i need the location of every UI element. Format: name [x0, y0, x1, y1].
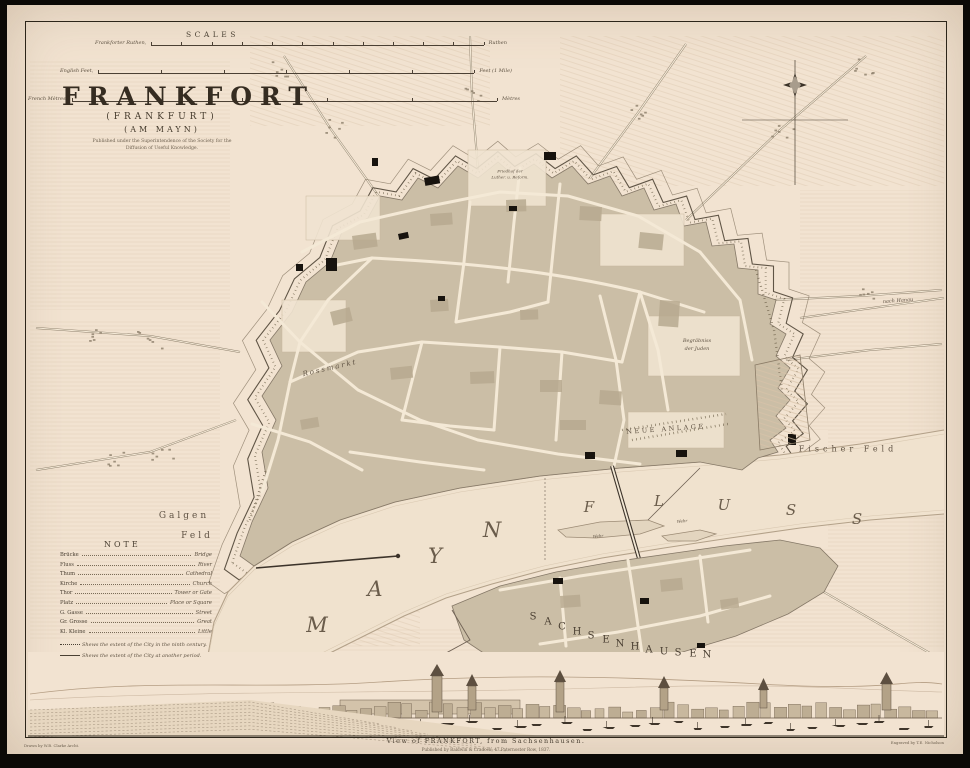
note-entry: BrückeBridge: [60, 552, 212, 562]
spread-letter-sachsenhausen: N: [616, 639, 625, 650]
note-meaning: Great: [197, 619, 212, 625]
credit-engraved-by: Engraved by T.E. Nicholson: [780, 740, 944, 745]
note-leader: [77, 565, 195, 566]
spread-letter-mayn: N: [483, 518, 501, 542]
spread-letter-sachsenhausen: S: [675, 648, 682, 659]
note-entry: Kl. KleineLittle: [60, 629, 212, 639]
spread-letter-sachsenhausen: H: [631, 642, 640, 653]
note-entry: G. GasseStreet: [60, 610, 212, 620]
publisher-imprint-line1: Published under the Superintendence of t…: [30, 139, 294, 144]
map-subtitle-am-mayn: (AM MAYN): [62, 125, 262, 134]
note-meaning: Place or Square: [170, 600, 212, 606]
spread-letter-sachsenhausen: H: [573, 627, 582, 638]
note-meaning: River: [198, 562, 212, 568]
note-term: Thum: [60, 571, 75, 577]
note-leader: [76, 603, 167, 604]
note-entry: PlatzPlace or Square: [60, 600, 212, 610]
spread-letter-sachsenhausen: E: [602, 635, 609, 646]
label-begraebniss-der-juden-2: der Juden: [685, 346, 710, 352]
scale-ruler: [151, 40, 483, 46]
spread-letter-sachsenhausen: E: [689, 649, 696, 660]
dashed-line-symbol: [60, 655, 80, 656]
note-term: Fluss: [60, 562, 74, 568]
note-entry: FlussRiver: [60, 562, 212, 572]
panorama-imprint: Published by Baldwin & Cradock, 47 Pater…: [266, 747, 706, 752]
spread-letter-fluss: L: [654, 492, 664, 510]
map-subtitle-frankfurt: (FRANKFURT): [62, 112, 262, 122]
spread-letter-mayn: A: [367, 577, 382, 601]
note-legend: BrückeBridgeFlussRiverThumCathedralKirch…: [60, 552, 212, 660]
spread-letter-mayn: Y: [428, 544, 442, 568]
spread-letter-fluss: S: [786, 501, 796, 519]
spread-letter-sachsenhausen: U: [660, 647, 668, 658]
label-fischer-feld: Fischer Feld: [799, 445, 897, 454]
note-meaning: Cathedral: [186, 571, 212, 577]
note-leader: [80, 584, 189, 585]
map-page: SCALES Frankforter Ruthen,RuthenEnglish …: [0, 0, 970, 768]
spread-letter-fluss: F: [584, 498, 594, 516]
note-dotted-line: Shews the extent of the City in the nint…: [60, 642, 210, 649]
spread-letter-sachsenhausen: N: [703, 650, 712, 661]
note-leader: [78, 574, 183, 575]
scale-ruler: [98, 68, 474, 74]
scale-left-label: English Feet,: [60, 68, 93, 74]
note-term: Kirche: [60, 581, 77, 587]
note-leader: [75, 593, 171, 594]
note-term: Thor: [60, 590, 72, 596]
scales-title: SCALES: [186, 30, 239, 39]
note-term: Kl. Kleine: [60, 629, 86, 635]
note-title: NOTE: [104, 540, 141, 549]
scale-bar-row: Frankforter Ruthen,Ruthen: [95, 40, 507, 46]
spread-letter-fluss: U: [718, 496, 731, 514]
note-meaning: Little: [198, 629, 212, 635]
note-entry: ThorTower or Gate: [60, 590, 212, 600]
note-meaning: Street: [196, 610, 212, 616]
note-dashed-line: Shews the extent of the City at another …: [60, 653, 210, 660]
scale-bar-row: English Feet,Feet (1 Mile): [60, 68, 512, 74]
note-leader: [86, 613, 193, 614]
spread-letter-sachsenhausen: C: [558, 622, 566, 633]
note-meaning: Bridge: [194, 552, 212, 558]
dotted-line-symbol: [60, 644, 80, 645]
spread-letter-sachsenhausen: A: [645, 645, 652, 656]
label-friedhof: Friedhof der: [497, 169, 522, 174]
spread-letter-mayn: M: [306, 613, 328, 637]
note-leader: [91, 622, 195, 623]
spread-letter-sachsenhausen: A: [544, 617, 551, 628]
note-leader: [89, 632, 195, 633]
note-term: Platz: [60, 600, 73, 606]
spread-letter-sachsenhausen: S: [588, 631, 595, 642]
scale-left-label: Frankforter Ruthen,: [95, 40, 146, 46]
scale-right-label: Feet (1 Mile): [479, 68, 512, 74]
note-entry: ThumCathedral: [60, 571, 212, 581]
spread-letter-sachsenhausen: S: [530, 612, 537, 623]
label-begraebniss-der-juden: Begräbniss: [683, 338, 711, 344]
note-entry: Gr. GrosseGreat: [60, 619, 212, 629]
scale-right-label: Ruthen: [489, 40, 507, 46]
note-term: Brücke: [60, 552, 79, 558]
publisher-imprint-line2: Diffusion of Useful Knowledge.: [30, 146, 294, 151]
panorama-caption: View of FRANKFORT, from Sachsenhausen.: [266, 737, 706, 745]
note-meaning: Church: [193, 581, 212, 587]
note-term: Gr. Grosse: [60, 619, 88, 625]
note-entry: KircheChurch: [60, 581, 212, 591]
note-meaning: Tower or Gate: [175, 590, 212, 596]
scale-right-label: Mètres: [502, 96, 520, 102]
note-term: G. Gasse: [60, 610, 83, 616]
spread-letter-fluss: S: [852, 510, 862, 528]
label-friedhof-2: Luther. u. Reform.: [491, 175, 528, 180]
label-galgen-feld-2: Feld: [181, 531, 213, 541]
label-galgen-feld: Galgen: [159, 511, 209, 521]
note-leader: [82, 555, 192, 556]
credit-drawn-by: Drawn by W.B. Clarke Archt.: [24, 743, 79, 748]
map-title: FRANKFORT: [62, 82, 262, 111]
